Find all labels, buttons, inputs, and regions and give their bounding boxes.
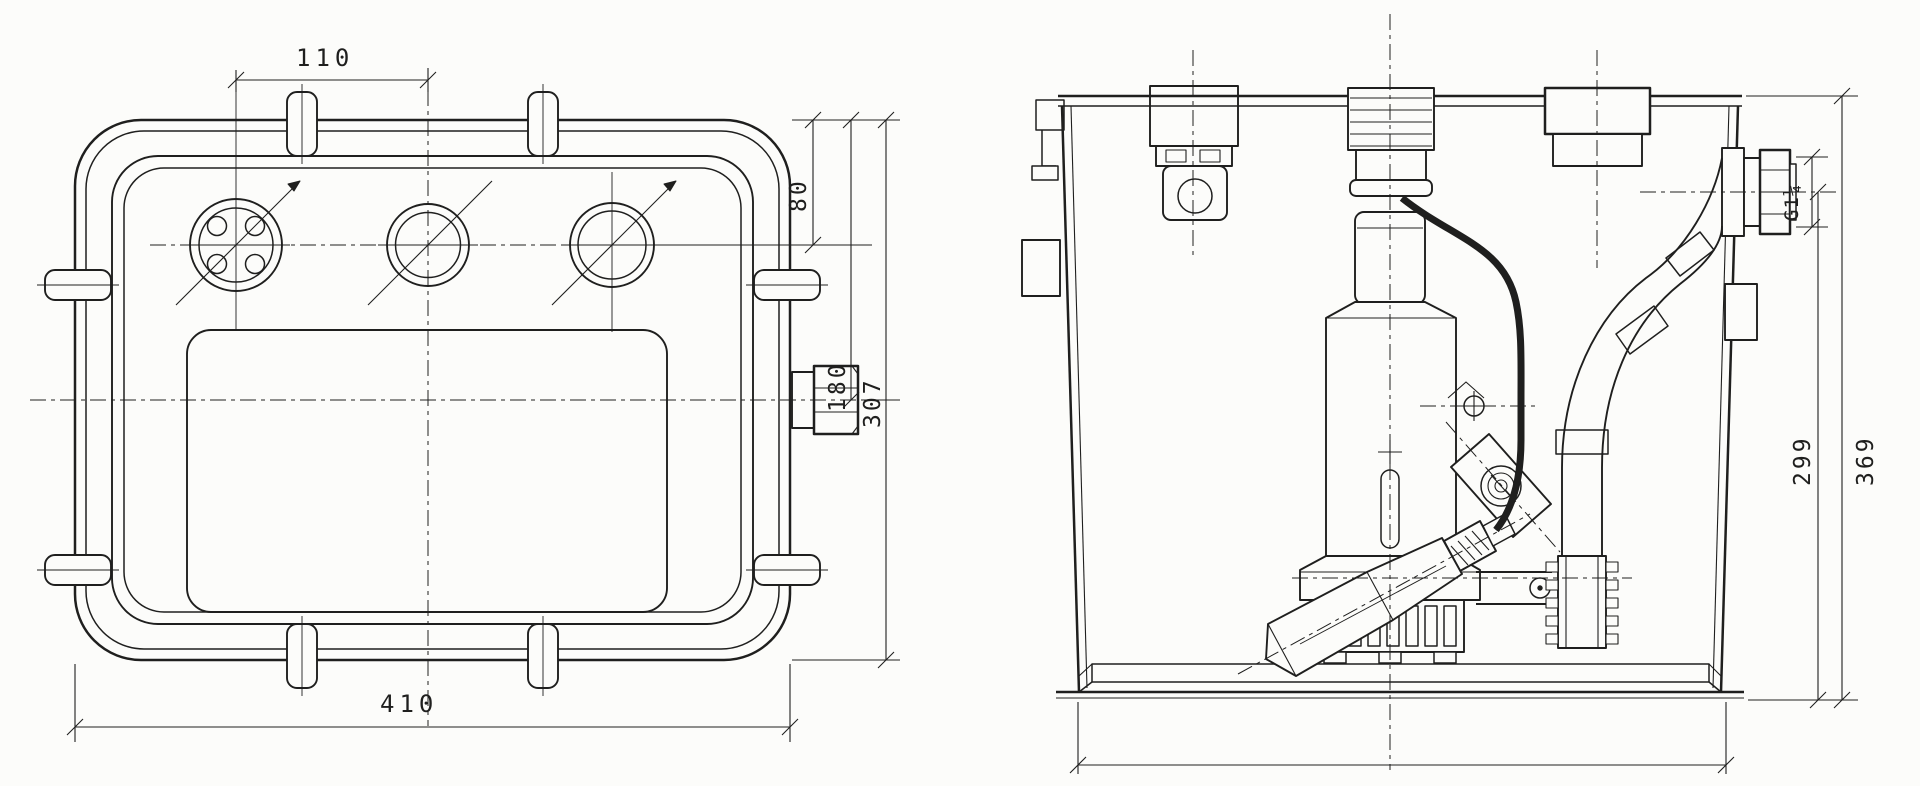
dim-110: 110 <box>228 44 436 92</box>
dim-label-307: 307 <box>860 377 886 428</box>
tank-rim-inner <box>86 131 779 649</box>
screw-cap-fitting <box>1348 88 1434 196</box>
inlet-port-right <box>552 172 676 332</box>
dim-label-outlet-thread: G1¼ <box>1781 184 1803 221</box>
gland-neck <box>1163 166 1227 220</box>
dim-bottom-width <box>1070 702 1734 774</box>
dim-label-299: 299 <box>1790 435 1816 486</box>
hose-inner-wall <box>1562 158 1722 468</box>
dim-299: 299 <box>1790 184 1826 708</box>
dim-label-410: 410 <box>380 690 438 718</box>
mounting-tabs <box>37 84 828 696</box>
slash-arrowhead <box>664 181 676 191</box>
dim-410: 410 <box>67 664 798 742</box>
inlet-port-middle <box>368 181 492 305</box>
lid-seam-inner <box>124 168 741 612</box>
motor-housing <box>1326 302 1456 556</box>
dim-label-80: 80 <box>786 178 812 212</box>
lid-clamp-bracket-left <box>1032 100 1064 180</box>
screw-cap <box>1348 88 1434 150</box>
drawing-sheet: 110 80 180 307 <box>0 0 1920 786</box>
wall-tab-left <box>1022 240 1060 296</box>
hose-band <box>1616 306 1668 354</box>
discharge-hose <box>1476 158 1722 648</box>
dim-label-110: 110 <box>296 44 354 72</box>
wall-tab-right <box>1725 284 1757 340</box>
cable-gland-port <box>176 70 300 330</box>
dim-label-180: 180 <box>825 361 851 412</box>
tank-wall-left <box>1062 106 1079 692</box>
pump-foot <box>1434 652 1456 663</box>
tank-bottom-plate <box>1092 664 1709 682</box>
access-cover <box>187 330 667 612</box>
section-view: G1¼ <box>1022 14 1879 774</box>
dim-80: 80 <box>660 112 900 253</box>
plan-view: 110 80 180 307 <box>30 44 900 742</box>
dim-180: 180 <box>825 112 900 412</box>
tank-rim-outer <box>75 120 790 660</box>
dim-label-369: 369 <box>1853 435 1879 486</box>
slash-arrowhead <box>288 181 300 191</box>
technical-drawing: 110 80 180 307 <box>0 0 1920 786</box>
hose-coupling <box>1546 556 1618 648</box>
hose-outer-wall <box>1602 226 1722 468</box>
